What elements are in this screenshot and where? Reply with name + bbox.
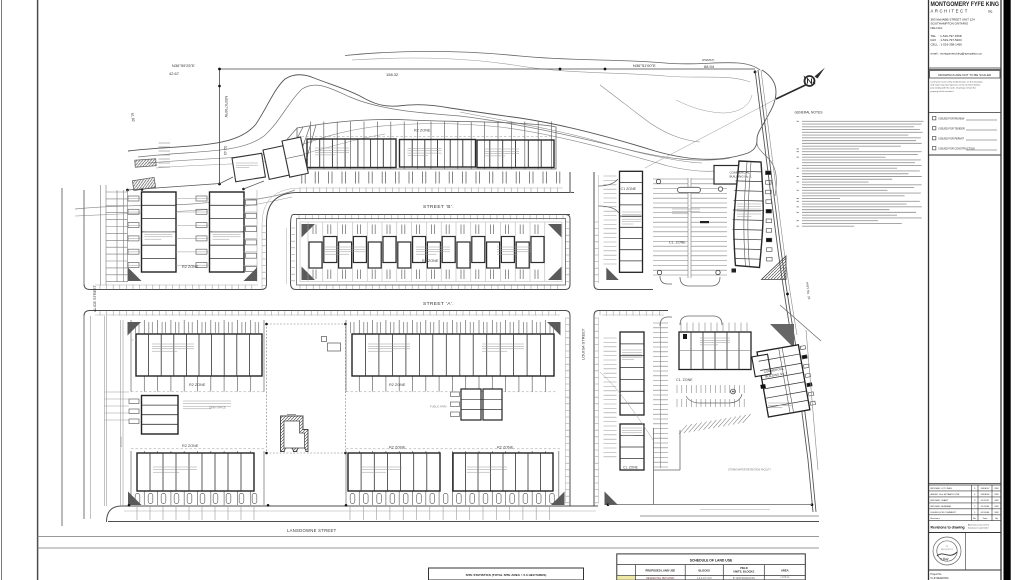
svg-text:DRAWINGS ARE NOT TO BE SCALED: DRAWINGS ARE NOT TO BE SCALED — [938, 73, 992, 77]
svg-text:property of the architect.: property of the architect. — [931, 90, 955, 93]
svg-text:WM: WM — [995, 512, 999, 514]
svg-text:R2 ZONE: R2 ZONE — [182, 444, 199, 448]
svg-text:Revisions to drawing: Revisions to drawing — [931, 526, 965, 530]
svg-text:T.Ray: T.Ray — [940, 557, 949, 562]
svg-text:Project No.: Project No. — [931, 573, 943, 576]
svg-text:SCHEDULE OF LAND USE: SCHEDULE OF LAND USE — [690, 558, 733, 562]
svg-text:Contractor must verify all dim: Contractor must verify all dimensions on… — [931, 81, 984, 84]
svg-text:OPEN SPACE: OPEN SPACE — [209, 406, 226, 410]
svg-text:(P&MST): (P&MST) — [702, 58, 714, 62]
svg-text:BLOCKS: BLOCKS — [699, 568, 711, 572]
svg-text:ISSUED FOR COMMENT: ISSUED FOR COMMENT — [931, 512, 957, 514]
svg-text:01/12/07: 01/12/07 — [981, 500, 990, 502]
svg-text:N0H 2L0: N0H 2L0 — [931, 26, 943, 30]
svg-text:N53°07'00"W: N53°07'00"W — [224, 96, 228, 118]
svg-text:26/FE/06: 26/FE/06 — [981, 494, 991, 496]
svg-text:Revisions: Revisions — [931, 518, 941, 520]
svg-text:R2 ZONE: R2 ZONE — [497, 446, 514, 450]
svg-text:WM: WM — [995, 494, 999, 496]
svg-text:R2 ZONE: R2 ZONE — [182, 265, 199, 269]
svg-text:68.94: 68.94 — [704, 64, 715, 69]
svg-text:158.32: 158.32 — [386, 72, 399, 77]
svg-text:REVISED LOT LINES: REVISED LOT LINES — [931, 488, 953, 490]
svg-text:ARCHITECTS: ARCHITECTS — [941, 548, 953, 551]
svg-text:N36°59'25"E: N36°59'25"E — [172, 63, 195, 68]
svg-text:+3.06 ha: +3.06 ha — [780, 577, 790, 579]
svg-text:MONTGOMERY FYFE KING: MONTGOMERY FYFE KING — [931, 1, 1000, 8]
svg-text:GENERAL NOTES: GENERAL NOTES — [795, 111, 824, 115]
svg-text:C1. ZONE: C1. ZONE — [623, 466, 638, 470]
svg-text:CELL : 1-519-358-1456: CELL : 1-519-358-1456 — [931, 42, 963, 46]
svg-text:C1. ZONE: C1. ZONE — [669, 241, 686, 245]
svg-text:REVISED CHART: REVISED CHART — [931, 499, 949, 502]
svg-text:and report any discrepancies t: and report any discrepancies to the arch… — [931, 84, 982, 87]
svg-text:ADDED 15m SETBACK LINE: ADDED 15m SETBACK LINE — [931, 493, 960, 496]
svg-text:LOUISA STREET: LOUISA STREET — [581, 328, 586, 360]
svg-text:Inc.: Inc. — [988, 10, 993, 14]
svg-text:C1 ZONE: C1 ZONE — [621, 187, 637, 191]
svg-text:WM: WM — [995, 500, 999, 502]
svg-text:RESERVE: RESERVE — [121, 436, 123, 447]
svg-text:UNITS, BLOCKS: UNITS, BLOCKS — [733, 570, 754, 574]
svg-text:All previous issues of this: All previous issues of this — [968, 524, 989, 527]
svg-text:26/FE/07: 26/FE/07 — [981, 488, 991, 490]
svg-text:LANSDOWNE STREET: LANSDOWNE STREET — [287, 528, 337, 533]
svg-text:ARCHITECT: ARCHITECT — [931, 9, 969, 14]
svg-text:REVISED GENERAL: REVISED GENERAL — [931, 505, 952, 508]
svg-text:01/10/06: 01/10/06 — [981, 506, 990, 508]
svg-text:AREA: AREA — [781, 568, 789, 572]
svg-text:R2 ZONE: R2 ZONE — [389, 446, 406, 450]
svg-text:R2 ZONE: R2 ZONE — [414, 129, 431, 133]
svg-text:No.: No. — [973, 518, 977, 520]
svg-text:STREET 'B'.: STREET 'B'. — [423, 204, 454, 210]
svg-text:STREET 'A'.: STREET 'A'. — [423, 301, 454, 307]
svg-text:ISSUED FOR REVIEW: ISSUED FOR REVIEW — [939, 118, 965, 121]
svg-text:ISSUED FOR PERMIT: ISSUED FOR PERMIT — [939, 138, 965, 141]
svg-text:PUBLIC PARK: PUBLIC PARK — [430, 405, 447, 409]
svg-text:R2 ZONE: R2 ZONE — [389, 383, 406, 387]
svg-text:C1. ZONE: C1. ZONE — [676, 378, 693, 382]
svg-text:5 LIF MEADOWS: 5 LIF MEADOWS — [931, 577, 949, 580]
svg-text:Date: Date — [983, 517, 988, 520]
svg-text:SITE STATISTICS (TOTAL SITE A: SITE STATISTICS (TOTAL SITE AREA = 5.6 H… — [466, 573, 547, 577]
svg-text:drawing are superseded: drawing are superseded — [968, 526, 988, 529]
svg-text:52.43: 52.43 — [223, 146, 227, 155]
svg-text:WM: WM — [995, 488, 999, 490]
svg-text:proceeding with the work. Draw: proceeding with the work. Drawings remai… — [931, 87, 977, 90]
svg-text:BUILDING No. 1: BUILDING No. 1 — [730, 175, 753, 179]
svg-text:R2 ZONE: R2 ZONE — [189, 383, 206, 387]
svg-text:PROPOSED LAND USE: PROPOSED LAND USE — [645, 568, 675, 572]
svg-text:ISSUED FOR TENDER: ISSUED FOR TENDER — [939, 128, 965, 131]
svg-text:STORM WATER RETENTION FACILITY: STORM WATER RETENTION FACILITY — [728, 469, 772, 472]
svg-text:ALICE STREET: ALICE STREET — [93, 284, 97, 312]
svg-text:01/10/06: 01/10/06 — [981, 512, 990, 514]
svg-text:YIELD: YIELD — [740, 566, 748, 570]
svg-text:WM: WM — [995, 506, 999, 508]
svg-text:email : montgomery.king@sympat: email : montgomery.king@sympatico.ca — [931, 52, 982, 56]
svg-text:R2 ZONE: R2 ZONE — [422, 259, 439, 263]
svg-text:42.67: 42.67 — [169, 71, 180, 76]
svg-text:N36°51'00"E: N36°51'00"E — [633, 63, 656, 68]
